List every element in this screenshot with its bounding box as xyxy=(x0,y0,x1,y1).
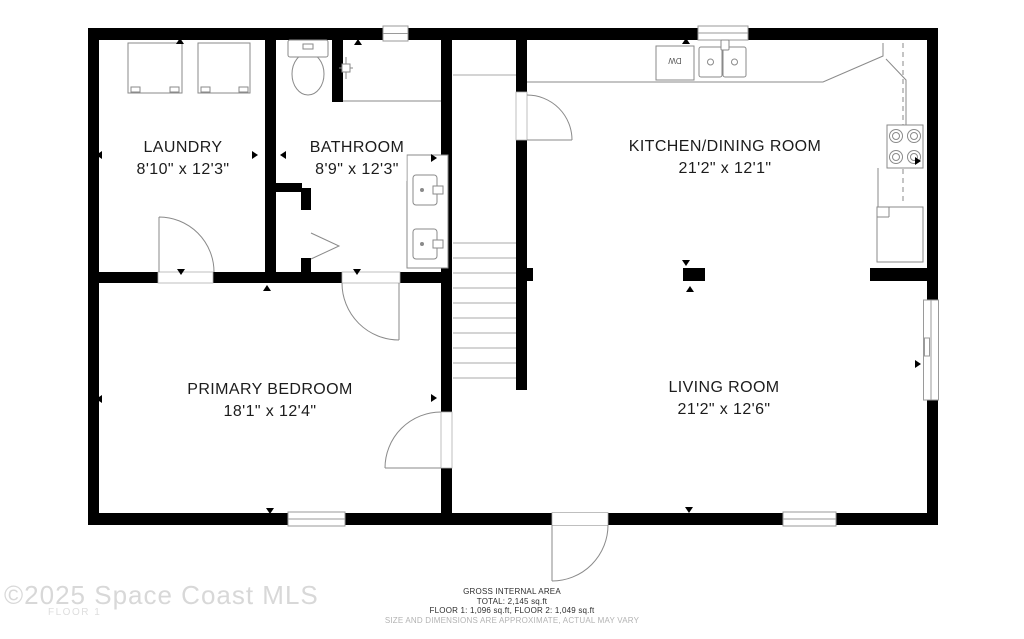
wall-stair-east-lower xyxy=(516,140,527,390)
dim-arrow-left xyxy=(280,151,286,159)
dim-arrow-right xyxy=(252,151,258,159)
door-frame-bedroom xyxy=(441,412,452,468)
dim-arrow-right xyxy=(431,394,437,402)
door-frame-laundry xyxy=(158,272,213,283)
wall-shower-stub xyxy=(332,28,343,102)
window-living-right xyxy=(924,300,939,400)
room-name: LAUNDRY xyxy=(137,137,230,159)
wall-top xyxy=(88,28,938,40)
wall-h-seg1 xyxy=(88,272,158,283)
room-label-bathroom: BATHROOM 8'9" x 12'3" xyxy=(307,137,407,181)
dim-arrow-right xyxy=(915,360,921,368)
wall-laundry-bath xyxy=(265,28,276,283)
room-label-laundry: LAUNDRY 8'10" x 12'3" xyxy=(134,137,233,181)
floorplan-canvas: DW xyxy=(0,0,1024,639)
wall-divider-right xyxy=(870,268,927,281)
area-summary-disclaimer: SIZE AND DIMENSIONS ARE APPROXIMATE, ACT… xyxy=(0,616,1024,626)
room-dims: 8'10" x 12'3" xyxy=(137,159,230,181)
room-name: KITCHEN/DINING ROOM xyxy=(629,136,822,158)
door-swing-stairs-kitchen xyxy=(527,95,572,140)
window-kitchen-top xyxy=(698,26,748,40)
wall-closet-top xyxy=(276,183,302,192)
wall-bedroom-east-lower xyxy=(441,468,452,525)
door-swing-entry xyxy=(552,525,608,581)
wall-closet-side-upper xyxy=(301,188,311,210)
area-summary-total: TOTAL: 2,145 sq.ft xyxy=(0,597,1024,607)
wall-stub-stair xyxy=(516,268,533,281)
wall-closet-side-lower xyxy=(301,258,311,283)
door-swing-bathroom xyxy=(342,283,399,340)
window-bathroom-top xyxy=(383,26,408,41)
dishwasher-label: DW xyxy=(668,56,682,65)
wall-h-seg2 xyxy=(213,272,342,283)
dim-arrow-up xyxy=(263,285,271,291)
shower-valve-icon xyxy=(339,57,441,101)
room-name: LIVING ROOM xyxy=(668,377,779,399)
door-swing-bedroom xyxy=(385,412,441,468)
toilet-icon xyxy=(288,40,328,95)
dryer-icon xyxy=(198,43,250,93)
room-dims: 8'9" x 12'3" xyxy=(310,159,404,181)
room-dims: 21'2" x 12'6" xyxy=(668,399,779,421)
floorplan-drawing: DW xyxy=(0,0,1024,639)
window-bedroom-bottom xyxy=(288,512,345,526)
door-swing-laundry xyxy=(159,217,214,272)
interior-walls xyxy=(88,28,927,525)
area-summary-title: GROSS INTERNAL AREA xyxy=(0,587,1024,597)
vanity-double-sink-icon xyxy=(407,155,448,268)
room-label-primary-bedroom: PRIMARY BEDROOM 18'1" x 12'4" xyxy=(184,379,355,423)
window-living-bottom xyxy=(783,512,836,526)
kitchen-sink-icon xyxy=(699,40,746,77)
washer-icon xyxy=(128,43,182,93)
bifold-door-icon xyxy=(311,233,339,259)
wall-right xyxy=(927,28,938,525)
room-label-kitchen-dining: KITCHEN/DINING ROOM 21'2" x 12'1" xyxy=(626,136,825,180)
dim-arrow-up xyxy=(686,286,694,292)
room-dims: 21'2" x 12'1" xyxy=(629,158,822,180)
dim-arrow-down xyxy=(685,507,693,513)
room-dims: 18'1" x 12'4" xyxy=(187,401,352,423)
area-summary: GROSS INTERNAL AREA TOTAL: 2,145 sq.ft F… xyxy=(0,587,1024,625)
dim-arrow-down xyxy=(682,260,690,266)
area-summary-floors: FLOOR 1: 1,096 sq.ft, FLOOR 2: 1,049 sq.… xyxy=(0,606,1024,616)
dishwasher-icon: DW xyxy=(656,46,694,80)
staircase xyxy=(453,75,516,378)
door-frame-entry xyxy=(552,513,608,526)
door-frame-stairs-kitchen xyxy=(516,92,527,140)
room-name: PRIMARY BEDROOM xyxy=(187,379,352,401)
door-frame-bathroom xyxy=(342,272,400,283)
wall-divider-mid xyxy=(683,268,705,281)
room-name: BATHROOM xyxy=(310,137,404,159)
room-label-living-room: LIVING ROOM 21'2" x 12'6" xyxy=(665,377,782,421)
wall-stair-east-upper xyxy=(516,28,527,92)
refrigerator-icon xyxy=(877,207,923,262)
